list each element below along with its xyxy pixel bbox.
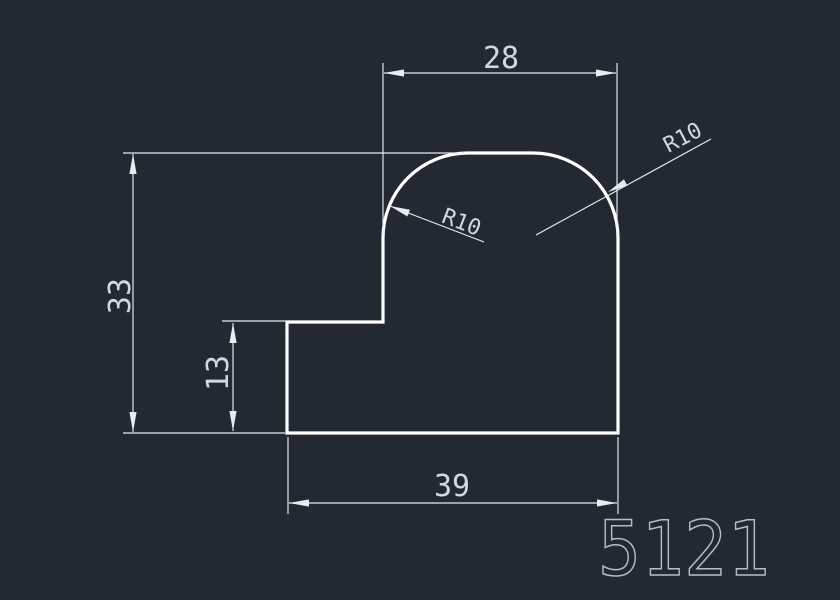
dim-text-step-height: 13 xyxy=(201,355,236,391)
dim-text-top-width: 28 xyxy=(483,41,519,76)
dim-text-overall-height: 33 xyxy=(103,278,138,314)
cad-viewport: 28 33 13 39 xyxy=(0,0,840,600)
cad-drawing-canvas: 28 33 13 39 xyxy=(0,0,840,600)
dim-text-bottom-width: 39 xyxy=(434,469,470,504)
part-number-text: 5121 xyxy=(598,504,770,593)
